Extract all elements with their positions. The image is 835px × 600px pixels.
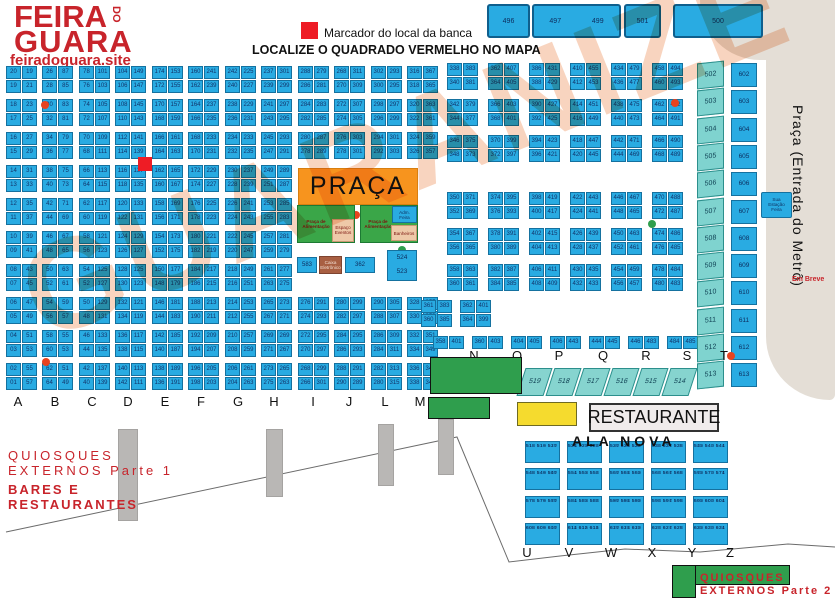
- stall-cell[interactable]: 454: [611, 264, 626, 277]
- stall-cell[interactable]: 311: [350, 66, 365, 79]
- stall-cell[interactable]: 182: [188, 245, 203, 258]
- stall-cell[interactable]: 241: [241, 198, 256, 211]
- stall-cell[interactable]: 178: [188, 212, 203, 225]
- stall-cell[interactable]: 243: [241, 212, 256, 225]
- stall-cell[interactable]: 227: [204, 179, 219, 192]
- stall-cell[interactable]: 290: [334, 377, 349, 390]
- stall-cell[interactable]: 223: [204, 212, 219, 225]
- stall-cell[interactable]: 399: [476, 314, 491, 327]
- stall-cell[interactable]: 140: [115, 363, 130, 376]
- stall-cell[interactable]: 173: [168, 231, 183, 244]
- stall-cell[interactable]: 241: [261, 99, 276, 112]
- stall-cell[interactable]: 111: [131, 377, 146, 390]
- stall-524-523[interactable]: 524 523: [387, 250, 417, 281]
- walkway-cell[interactable]: 506: [697, 170, 724, 199]
- stall-cell[interactable]: 362: [460, 300, 475, 313]
- stall-cell[interactable]: 138: [115, 344, 130, 357]
- stall-583[interactable]: 583: [297, 257, 317, 273]
- stall-cell[interactable]: 180: [188, 231, 203, 244]
- stall-cell[interactable]: 412: [570, 77, 585, 90]
- stall-block[interactable]: 545 546 547548 549 550: [525, 468, 560, 490]
- stall-cell[interactable]: 270: [298, 344, 313, 357]
- stall-cell[interactable]: 289: [350, 377, 365, 390]
- stall-cell[interactable]: 263: [261, 278, 276, 291]
- stall-cell[interactable]: 32: [42, 113, 57, 126]
- stall-cell[interactable]: 401: [449, 336, 464, 349]
- stall-cell[interactable]: 324: [407, 132, 422, 145]
- stall-cell[interactable]: 60: [79, 212, 94, 225]
- stall-cell[interactable]: 126: [115, 245, 130, 258]
- stall-cell[interactable]: 267: [261, 311, 276, 324]
- stall-cell[interactable]: 460: [652, 77, 667, 90]
- stall-cell[interactable]: 43: [22, 264, 37, 277]
- stall-cell[interactable]: 387: [504, 264, 519, 277]
- stall-cell[interactable]: 76: [79, 80, 94, 93]
- stall-cell[interactable]: 220: [225, 245, 240, 258]
- stall-cell[interactable]: 456: [611, 278, 626, 291]
- stall-cell[interactable]: 461: [627, 242, 642, 255]
- stall-cell[interactable]: 421: [545, 149, 560, 162]
- stall-cell[interactable]: 203: [204, 377, 219, 390]
- stall-cell[interactable]: 363: [423, 99, 438, 112]
- stall-cell[interactable]: 445: [586, 149, 601, 162]
- stall-cell[interactable]: 49: [58, 377, 73, 390]
- large-stall[interactable]: 501: [624, 4, 661, 38]
- stall-cell[interactable]: 290: [371, 297, 386, 310]
- stall-cell[interactable]: 09: [6, 245, 21, 258]
- stall-cell[interactable]: 243: [261, 113, 276, 126]
- stall-cell[interactable]: 287: [314, 132, 329, 145]
- stall-cell[interactable]: 186: [188, 278, 203, 291]
- stall-cell[interactable]: 251: [241, 278, 256, 291]
- stall-cell[interactable]: 64: [42, 377, 57, 390]
- stall-cell[interactable]: 470: [652, 192, 667, 205]
- stall-cell[interactable]: 144: [152, 311, 167, 324]
- stall-block[interactable]: 605 606 607608 609 610: [525, 523, 560, 545]
- stall-cell[interactable]: 07: [6, 278, 21, 291]
- stall-cell[interactable]: 375: [463, 135, 478, 148]
- stall-cell[interactable]: 77: [58, 146, 73, 159]
- stall-cell[interactable]: 152: [152, 245, 167, 258]
- stall-cell[interactable]: 174: [188, 179, 203, 192]
- stall-cell[interactable]: 385: [437, 314, 452, 327]
- stall-cell[interactable]: 385: [504, 278, 519, 291]
- stall-cell[interactable]: 68: [79, 146, 94, 159]
- stall-cell[interactable]: 479: [627, 63, 642, 76]
- stall-cell[interactable]: 139: [95, 377, 110, 390]
- stall-cell[interactable]: 426: [570, 228, 585, 241]
- stall-cell[interactable]: 384: [488, 278, 503, 291]
- stall-cell[interactable]: 237: [261, 66, 276, 79]
- stall-cell[interactable]: 253: [261, 198, 276, 211]
- stall-cell[interactable]: 444: [611, 149, 626, 162]
- stall-cell[interactable]: 423: [545, 135, 560, 148]
- stall-cell[interactable]: 458: [652, 63, 667, 76]
- stall-cell[interactable]: 198: [188, 377, 203, 390]
- stall-cell[interactable]: 19: [6, 80, 21, 93]
- stall-cell[interactable]: 112: [115, 132, 130, 145]
- stall-cell[interactable]: 478: [652, 264, 667, 277]
- stall-cell[interactable]: 293: [314, 311, 329, 324]
- walkway-cell[interactable]: 503: [697, 88, 724, 117]
- stall-cell[interactable]: 263: [241, 377, 256, 390]
- stall-cell[interactable]: 156: [152, 212, 167, 225]
- stall-cell[interactable]: 367: [423, 66, 438, 79]
- stall-cell[interactable]: 133: [95, 330, 110, 343]
- stall-cell[interactable]: 411: [545, 264, 560, 277]
- stall-cell[interactable]: 358: [433, 336, 448, 349]
- stall-cell[interactable]: 53: [58, 344, 73, 357]
- stall-cell[interactable]: 61: [58, 278, 73, 291]
- stall-cell[interactable]: 51: [58, 363, 73, 376]
- stall-cell[interactable]: 296: [371, 113, 386, 126]
- walkway-cell[interactable]: 504: [697, 115, 724, 144]
- stall-cell[interactable]: 44: [42, 212, 57, 225]
- stall-cell[interactable]: 221: [204, 231, 219, 244]
- stall-cell[interactable]: 336: [407, 363, 422, 376]
- stall-cell[interactable]: 269: [277, 330, 292, 343]
- stall-cell[interactable]: 249: [241, 264, 256, 277]
- stall-cell[interactable]: 235: [204, 113, 219, 126]
- stall-cell[interactable]: 285: [277, 198, 292, 211]
- stall-cell[interactable]: 157: [168, 99, 183, 112]
- stall-cell[interactable]: 435: [586, 264, 601, 277]
- stall-cell[interactable]: 381: [463, 77, 478, 90]
- stall-cell[interactable]: 298: [371, 99, 386, 112]
- stall-cell[interactable]: 46: [79, 330, 94, 343]
- stall-cell[interactable]: 280: [298, 132, 313, 145]
- stall-cell[interactable]: 398: [529, 192, 544, 205]
- stall-cell[interactable]: 417: [545, 206, 560, 219]
- stall-cell[interactable]: 305: [387, 297, 402, 310]
- stall-cell[interactable]: 361: [423, 113, 438, 126]
- stall-cell[interactable]: 468: [652, 149, 667, 162]
- stall-cell[interactable]: 368: [488, 113, 503, 126]
- stall-cell[interactable]: 388: [529, 77, 544, 90]
- large-stall[interactable]: 496: [487, 4, 530, 38]
- stall-cell[interactable]: 51: [22, 330, 37, 343]
- stall-cell[interactable]: 300: [371, 80, 386, 93]
- stall-cell[interactable]: 350: [447, 192, 462, 205]
- stall-cell[interactable]: 185: [168, 330, 183, 343]
- stall-cell[interactable]: 37: [22, 212, 37, 225]
- walkway-cell[interactable]: 513: [697, 361, 724, 390]
- stall-cell[interactable]: 11: [6, 212, 21, 225]
- stall-cell[interactable]: 484: [668, 264, 683, 277]
- stall-cell[interactable]: 162: [152, 165, 167, 178]
- stall-cell[interactable]: 402: [529, 228, 544, 241]
- stall-cell[interactable]: 475: [627, 99, 642, 112]
- stall-cell[interactable]: 316: [407, 66, 422, 79]
- stall-cell[interactable]: 143: [131, 113, 146, 126]
- stall-cell[interactable]: 109: [95, 132, 110, 145]
- stall-cell[interactable]: 62: [79, 198, 94, 211]
- walkway-cell[interactable]: 510: [697, 279, 724, 308]
- stall-cell[interactable]: 270: [334, 80, 349, 93]
- stall-cell[interactable]: 242: [225, 66, 240, 79]
- stall-cell[interactable]: 212: [225, 311, 240, 324]
- stall-cell[interactable]: 161: [168, 132, 183, 145]
- stall-cell[interactable]: 416: [570, 113, 585, 126]
- stall-cell[interactable]: 235: [241, 146, 256, 159]
- stall-cell[interactable]: 276: [298, 297, 313, 310]
- stall-cell[interactable]: 403: [504, 99, 519, 112]
- stall-cell[interactable]: 259: [261, 245, 276, 258]
- stall-cell[interactable]: 233: [204, 132, 219, 145]
- stall-cell[interactable]: 48: [79, 311, 94, 324]
- stall-cell[interactable]: 53: [22, 344, 37, 357]
- stall-cell[interactable]: 75: [58, 165, 73, 178]
- stall-cell[interactable]: 153: [168, 66, 183, 79]
- stall-cell[interactable]: 302: [371, 66, 386, 79]
- stall-block[interactable]: 599 600 601602 603 604: [693, 496, 728, 518]
- stall-cell[interactable]: 282: [334, 311, 349, 324]
- stall-cell[interactable]: 40: [79, 377, 94, 390]
- stall-cell[interactable]: 453: [586, 77, 601, 90]
- stall-cell[interactable]: 136: [115, 330, 130, 343]
- walkway-cell[interactable]: 502: [697, 61, 724, 90]
- stall-cell[interactable]: 257: [261, 231, 276, 244]
- stall-cell[interactable]: 390: [529, 99, 544, 112]
- stall-cell[interactable]: 170: [188, 146, 203, 159]
- stall-cell[interactable]: 386: [529, 63, 544, 76]
- stall-cell[interactable]: 276: [334, 132, 349, 145]
- stall-cell[interactable]: 54: [42, 297, 57, 310]
- stall-cell[interactable]: 303: [350, 132, 365, 145]
- stall-cell[interactable]: 401: [504, 113, 519, 126]
- stall-cell[interactable]: 65: [58, 245, 73, 258]
- stall-cell[interactable]: 488: [668, 192, 683, 205]
- stall-cell[interactable]: 175: [168, 245, 183, 258]
- stall-cell[interactable]: 487: [668, 206, 683, 219]
- large-stall[interactable]: 497499: [532, 4, 621, 38]
- stall-cell[interactable]: 101: [95, 66, 110, 79]
- stall-cell[interactable]: 373: [463, 149, 478, 162]
- stall-cell[interactable]: 407: [504, 63, 519, 76]
- stall-cell[interactable]: 366: [488, 99, 503, 112]
- stall-cell[interactable]: 483: [668, 278, 683, 291]
- stall-cell[interactable]: 365: [463, 242, 478, 255]
- stall-cell[interactable]: 73: [58, 179, 73, 192]
- stall-cell[interactable]: 27: [22, 132, 37, 145]
- stall-cell[interactable]: 42: [79, 363, 94, 376]
- stall-block[interactable]: 575 576 577578 579 580: [525, 496, 560, 518]
- stall-cell[interactable]: 154: [152, 231, 167, 244]
- stall-cell[interactable]: 267: [277, 344, 292, 357]
- stall-cell[interactable]: 168: [188, 132, 203, 145]
- stall-cell[interactable]: 247: [241, 245, 256, 258]
- stall-cell[interactable]: 379: [463, 99, 478, 112]
- stall-cell[interactable]: 279: [277, 245, 292, 258]
- stall-cell[interactable]: 303: [387, 146, 402, 159]
- stall-cell[interactable]: 234: [225, 132, 240, 145]
- stall-cell[interactable]: 19: [22, 66, 37, 79]
- stall-cell[interactable]: 275: [277, 278, 292, 291]
- stall-cell[interactable]: 115: [131, 344, 146, 357]
- stall-cell[interactable]: 259: [241, 344, 256, 357]
- stall-cell[interactable]: 275: [261, 377, 276, 390]
- stall-cell[interactable]: 63: [58, 264, 73, 277]
- stall-cell[interactable]: 462: [652, 99, 667, 112]
- stall-cell[interactable]: 217: [204, 264, 219, 277]
- stall-cell[interactable]: 610: [731, 281, 757, 305]
- stall-cell[interactable]: 441: [586, 206, 601, 219]
- stall-cell[interactable]: 282: [371, 363, 386, 376]
- stall-cell[interactable]: 405: [504, 77, 519, 90]
- stall-cell[interactable]: 205: [204, 363, 219, 376]
- stall-cell[interactable]: 34: [42, 132, 57, 145]
- stall-cell[interactable]: 145: [131, 99, 146, 112]
- stall-cell[interactable]: 225: [241, 66, 256, 79]
- stall-cell[interactable]: 292: [371, 146, 386, 159]
- stall-cell[interactable]: 25: [22, 113, 37, 126]
- stall-cell[interactable]: 357: [423, 146, 438, 159]
- stall-cell[interactable]: 294: [371, 132, 386, 145]
- stall-cell[interactable]: 58: [79, 231, 94, 244]
- stall-cell[interactable]: 174: [152, 66, 167, 79]
- stall-cell[interactable]: 338: [447, 63, 462, 76]
- stall-cell[interactable]: 291: [350, 363, 365, 376]
- stall-cell[interactable]: 459: [627, 264, 642, 277]
- stall-cell[interactable]: 322: [407, 113, 422, 126]
- stall-cell[interactable]: 281: [277, 231, 292, 244]
- stall-cell[interactable]: 451: [586, 99, 601, 112]
- stall-cell[interactable]: 406: [529, 264, 544, 277]
- stall-block[interactable]: 587 588 589590 591 592: [609, 496, 644, 518]
- stall-cell[interactable]: 47: [22, 297, 37, 310]
- stall-block[interactable]: 623 624 625626 627 628: [651, 523, 686, 545]
- stall-cell[interactable]: 189: [168, 363, 183, 376]
- stall-cell[interactable]: 225: [204, 198, 219, 211]
- stall-cell[interactable]: 604: [731, 118, 757, 142]
- stall-cell[interactable]: 447: [586, 135, 601, 148]
- stall-cell[interactable]: 54: [79, 264, 94, 277]
- stall-cell[interactable]: 172: [152, 80, 167, 93]
- stall-cell[interactable]: 08: [6, 264, 21, 277]
- stall-cell[interactable]: 282: [298, 113, 313, 126]
- stall-cell[interactable]: 167: [168, 179, 183, 192]
- stall-cell[interactable]: 403: [488, 336, 503, 349]
- stall-cell[interactable]: 360: [447, 278, 462, 291]
- stall-cell[interactable]: 55: [58, 330, 73, 343]
- stall-block[interactable]: 617 618 619620 621 622: [609, 523, 644, 545]
- stall-block[interactable]: 563 564 565566 567 568: [651, 468, 686, 490]
- stall-cell[interactable]: 611: [731, 309, 757, 333]
- stall-cell[interactable]: 315: [387, 377, 402, 390]
- stall-cell[interactable]: 286: [371, 330, 386, 343]
- stall-cell[interactable]: 160: [188, 66, 203, 79]
- stall-cell[interactable]: 31: [22, 165, 37, 178]
- stall-block[interactable]: 593 594 595596 597 598: [651, 496, 686, 518]
- stall-cell[interactable]: 286: [298, 80, 313, 93]
- stall-cell[interactable]: 471: [627, 135, 642, 148]
- stall-cell[interactable]: 172: [188, 165, 203, 178]
- stall-cell[interactable]: 14: [6, 165, 21, 178]
- stall-cell[interactable]: 374: [488, 192, 503, 205]
- walkway-cell[interactable]: 511: [697, 306, 724, 335]
- stall-cell[interactable]: 184: [188, 264, 203, 277]
- stall-cell[interactable]: 57: [22, 377, 37, 390]
- stall-cell[interactable]: 216: [225, 278, 240, 291]
- large-stall[interactable]: 500: [673, 4, 763, 38]
- stall-cell[interactable]: 301: [314, 377, 329, 390]
- stall-cell[interactable]: 117: [131, 330, 146, 343]
- stall-cell[interactable]: 131: [131, 212, 146, 225]
- stall-cell[interactable]: 28: [42, 80, 57, 93]
- stall-cell[interactable]: 265: [277, 363, 292, 376]
- stall-cell[interactable]: 380: [488, 242, 503, 255]
- stall-cell[interactable]: 12: [6, 198, 21, 211]
- stall-cell[interactable]: 121: [95, 231, 110, 244]
- stall-cell[interactable]: 20: [6, 66, 21, 79]
- walkway-cell[interactable]: 508: [697, 224, 724, 253]
- stall-cell[interactable]: 473: [627, 113, 642, 126]
- stall-cell[interactable]: 85: [58, 80, 73, 93]
- stall-cell[interactable]: 17: [6, 113, 21, 126]
- stall-cell[interactable]: 206: [225, 363, 240, 376]
- stall-cell[interactable]: 603: [731, 90, 757, 114]
- stall-cell[interactable]: 442: [611, 135, 626, 148]
- stall-cell[interactable]: 39: [22, 231, 37, 244]
- stall-cell[interactable]: 283: [314, 99, 329, 112]
- stall-cell[interactable]: 326: [407, 146, 422, 159]
- stall-cell[interactable]: 273: [261, 363, 276, 376]
- stall-cell[interactable]: 78: [79, 66, 94, 79]
- stall-cell[interactable]: 309: [387, 330, 402, 343]
- stall-block[interactable]: 611 612 613614 615 616: [567, 523, 602, 545]
- stall-cell[interactable]: 02: [6, 363, 21, 376]
- stall-cell[interactable]: 434: [611, 63, 626, 76]
- stall-cell[interactable]: 466: [652, 135, 667, 148]
- stall-block[interactable]: 515 516 517518 519 520: [525, 441, 560, 463]
- stall-cell[interactable]: 133: [131, 198, 146, 211]
- stall-cell[interactable]: 431: [545, 63, 560, 76]
- stall-cell[interactable]: 432: [570, 278, 585, 291]
- stall-cell[interactable]: 269: [261, 330, 276, 343]
- stall-cell[interactable]: 06: [6, 297, 21, 310]
- stall-cell[interactable]: 370: [488, 135, 503, 148]
- stall-cell[interactable]: 334: [407, 344, 422, 357]
- stall-cell[interactable]: 283: [277, 212, 292, 225]
- stall-cell[interactable]: 450: [611, 228, 626, 241]
- stall-cell[interactable]: 33: [22, 179, 37, 192]
- stall-cell[interactable]: 359: [423, 132, 438, 145]
- stall-cell[interactable]: 268: [298, 363, 313, 376]
- stall-cell[interactable]: 128: [115, 264, 130, 277]
- stall-cell[interactable]: 261: [241, 363, 256, 376]
- stall-cell[interactable]: 291: [314, 297, 329, 310]
- stall-cell[interactable]: 393: [504, 206, 519, 219]
- stall-cell[interactable]: 71: [58, 198, 73, 211]
- stall-cell[interactable]: 297: [350, 311, 365, 324]
- stall-cell[interactable]: 307: [350, 99, 365, 112]
- stall-cell[interactable]: 142: [115, 377, 130, 390]
- stall-cell[interactable]: 313: [387, 363, 402, 376]
- stall-cell[interactable]: 253: [241, 297, 256, 310]
- stall-cell[interactable]: 299: [350, 297, 365, 310]
- stall-cell[interactable]: 05: [6, 311, 21, 324]
- stall-cell[interactable]: 79: [58, 132, 73, 145]
- stall-cell[interactable]: 192: [188, 330, 203, 343]
- stall-cell[interactable]: 430: [570, 264, 585, 277]
- stall-cell[interactable]: 305: [350, 113, 365, 126]
- stall-cell[interactable]: 237: [241, 165, 256, 178]
- stall-cell[interactable]: 149: [131, 66, 146, 79]
- stall-cell[interactable]: 376: [488, 206, 503, 219]
- stall-cell[interactable]: 271: [261, 344, 276, 357]
- stall-cell[interactable]: 332: [407, 330, 422, 343]
- stall-cell[interactable]: 222: [225, 231, 240, 244]
